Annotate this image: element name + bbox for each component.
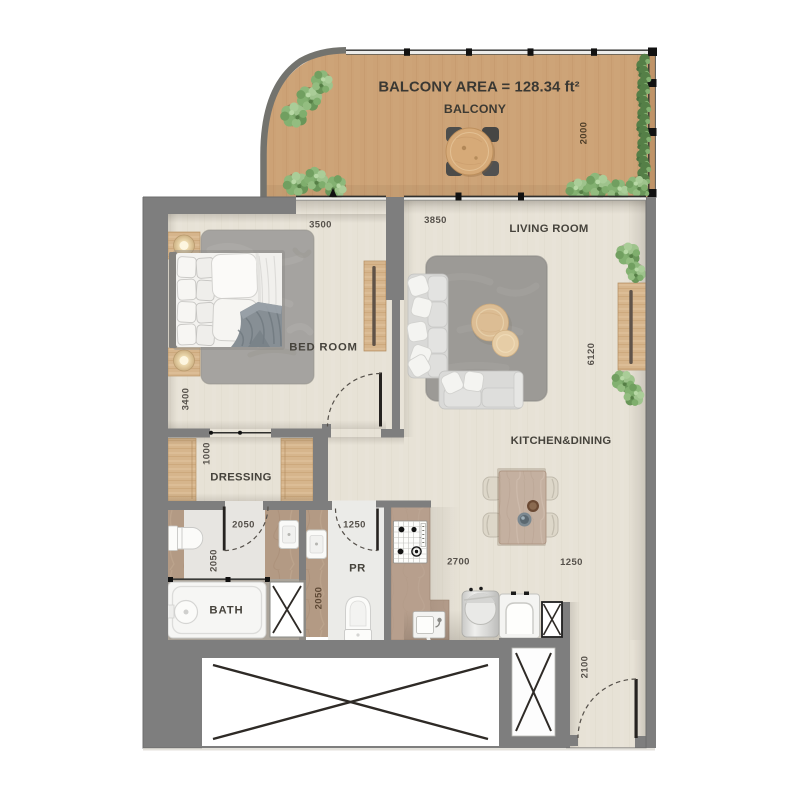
- svg-text:BED ROOM: BED ROOM: [289, 342, 358, 354]
- svg-text:LIVING ROOM: LIVING ROOM: [509, 223, 588, 235]
- svg-text:PR: PR: [349, 563, 366, 575]
- svg-text:BALCONY AREA = 128.34 ft²: BALCONY AREA = 128.34 ft²: [378, 80, 579, 96]
- svg-text:DRESSING: DRESSING: [210, 472, 271, 484]
- svg-text:1250: 1250: [560, 557, 583, 568]
- svg-text:2050: 2050: [209, 549, 220, 572]
- svg-text:6120: 6120: [586, 343, 597, 366]
- svg-text:1250: 1250: [343, 520, 366, 531]
- svg-text:2100: 2100: [579, 656, 590, 679]
- svg-text:1000: 1000: [202, 442, 213, 465]
- svg-text:KITCHEN&DINING: KITCHEN&DINING: [511, 435, 612, 447]
- svg-text:3850: 3850: [424, 215, 447, 226]
- svg-text:2050: 2050: [232, 520, 255, 531]
- svg-text:3500: 3500: [309, 220, 332, 231]
- svg-text:3400: 3400: [180, 388, 191, 411]
- svg-text:2050: 2050: [314, 587, 325, 610]
- svg-text:2700: 2700: [447, 557, 470, 568]
- svg-text:BALCONY: BALCONY: [444, 102, 506, 116]
- svg-text:2000: 2000: [578, 122, 589, 145]
- svg-text:BATH: BATH: [209, 605, 243, 617]
